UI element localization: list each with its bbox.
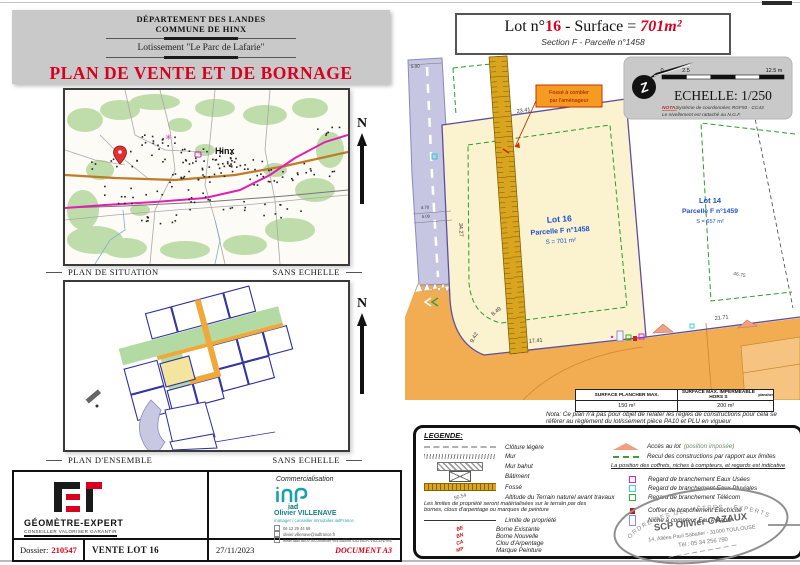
vente-cell: VENTE LOT 16 — [92, 540, 159, 560]
lot14-name: Lot 14 — [699, 196, 722, 205]
lot14-area: S = 657 m² — [696, 219, 724, 225]
legend-item: MP Marque Peinture — [424, 546, 542, 554]
situation-caption-row: PLAN DE SITUATION SANS ECHELLE — [46, 266, 362, 278]
scale-bar — [662, 75, 784, 79]
north-arrowhead-icon — [357, 313, 367, 326]
dim-road-length: 34.27 — [457, 223, 464, 237]
surveyor-brand: GÉOMÈTRE-EXPERT — [24, 518, 124, 528]
scale-nota2: Le nivellement est rattaché au N.G.F. — [662, 112, 741, 118]
lot-title-mid: - Surface = — [561, 18, 640, 35]
header-band: DÉPARTEMENT DES LANDES COMMUNE DE HINX L… — [12, 10, 390, 84]
legend-item: 50.54 Altitude du Terrain naturel avant … — [424, 493, 615, 501]
table-header-1: SURFACE PLANCHER MAX. — [576, 390, 678, 401]
web-icon — [274, 537, 280, 543]
ensemble-map-frame — [63, 280, 350, 452]
iad-logo: iad — [274, 484, 314, 510]
north-letter: N — [350, 116, 374, 132]
commercial-label: Commercialisation — [276, 476, 334, 483]
north-arrow: N — [350, 296, 374, 394]
dim-road-width: 5.00 — [411, 63, 421, 69]
divider — [83, 540, 85, 560]
document-format: DOCUMENT A3 — [335, 540, 392, 560]
north-arrow: N — [350, 116, 374, 204]
situation-map-frame: Hinx ✳ — [63, 88, 350, 266]
chateau-symbol: ✳ — [165, 133, 172, 142]
date-cell: 27/11/2023 — [216, 540, 254, 560]
ensemble-caption: PLAN D'ENSEMBLE — [68, 455, 152, 465]
marker-niche-aep — [617, 331, 623, 341]
lot-title-prefix: Lot n° — [504, 18, 545, 35]
scale-title: ECHELLE: 1/250 — [674, 88, 772, 103]
table-value-1: 150 m² — [576, 401, 678, 411]
altitude-symbol: 50.54 — [424, 494, 496, 500]
dim-front14: 21.71 — [715, 314, 729, 322]
limits-note: Les limites de propriété seront matérial… — [424, 501, 606, 514]
scan-corner-tick — [762, 1, 792, 5]
agent-phone: 06 12 29 44 69 — [283, 526, 310, 531]
agent-email: olivier.villenave@iadfrance.fr — [283, 532, 335, 537]
ornament-divider — [106, 36, 296, 41]
mur-symbol — [424, 454, 496, 459]
north-shaft — [360, 146, 364, 204]
fosse-symbol — [424, 483, 496, 491]
recul-symbol — [611, 456, 641, 458]
lot-title-box: Lot n°16 - Surface = 701m² Section F - P… — [455, 13, 731, 55]
ornament-divider — [106, 55, 296, 60]
legend-item: Mur — [424, 452, 516, 460]
annotation-line2: par l'aménageur — [550, 98, 589, 104]
legend-item: Fossé — [424, 483, 522, 491]
department-label: DÉPARTEMENT DES LANDES — [12, 10, 390, 24]
situation-map: Hinx ✳ — [65, 90, 348, 264]
dossier-label: Dossier: — [20, 545, 48, 555]
caption-dash — [46, 460, 62, 461]
dossier-number: 210547 — [51, 545, 77, 555]
scale-nota-label: NOTA: — [662, 105, 677, 111]
dim-side14: 46.75 — [733, 271, 747, 279]
lot14-label-group: Lot 14 Parcelle F n°1459 S = 657 m² — [682, 196, 738, 225]
regard-eaux-pluviales-swatch — [622, 485, 642, 492]
divider — [207, 472, 209, 538]
dim-w1: 4.78 — [421, 204, 430, 210]
title-block: GÉOMÈTRE-EXPERT CONSEILLER VALORISER GAR… — [12, 470, 402, 562]
situation-caption: PLAN DE SITUATION — [68, 267, 159, 277]
scale-tick0: 0 — [660, 68, 663, 74]
table-header-2: SURFACE MAX. IMPERMEABLE HORS Splancher — [678, 390, 773, 401]
legend-title: LEGENDE: — [424, 431, 463, 440]
surveyor-tagline: CONSEILLER VALORISER GARANTIR — [24, 529, 117, 537]
ensemble-caption-row: PLAN D'ENSEMBLE SANS ECHELLE — [46, 454, 362, 466]
table-value-2: 200 m² — [678, 401, 773, 411]
lot14-east-boundary — [754, 113, 793, 308]
mur-bahut-symbol — [424, 462, 496, 471]
north-arrowhead-icon — [357, 133, 367, 146]
lotissement-label: Lotissement "Le Parc de Lafarie" — [12, 43, 390, 53]
ensemble-scale-note: SANS ECHELLE — [272, 455, 340, 465]
legend-item: Mur bahut — [424, 462, 533, 470]
acces-lot16 — [653, 324, 673, 333]
surface-table: SURFACE PLANCHER MAX. SURFACE MAX. IMPER… — [575, 389, 774, 412]
lot-number: 16 — [545, 18, 561, 35]
geometre-expert-logo — [52, 480, 114, 516]
lot14-parcel-label: Parcelle F n°1459 — [682, 207, 738, 215]
scale-box: Z 0 2.5 12.5 m ECHELLE: 1/250 NOTA: Syst… — [624, 57, 792, 119]
situation-scale-note: SANS ECHELLE — [272, 267, 340, 277]
scale-tick2: 12.5 m — [766, 68, 783, 74]
legend-item: Recul des constructions par rapport aux … — [611, 452, 776, 461]
marker-eaux-pluviales — [690, 324, 694, 328]
divider — [207, 540, 209, 560]
annotation-line1: Fossé à combler — [549, 90, 589, 96]
marker-electricite — [633, 336, 637, 341]
agent-name: Olivier VILLENAVE — [274, 510, 337, 517]
page-title: PLAN DE VENTE ET DE BORNAGE — [12, 63, 390, 84]
acces-symbol — [611, 443, 641, 450]
lot-subtitle: Section F - Parcelle n°1458 — [457, 37, 729, 47]
legend-item: Accès au lot (position imposée) — [611, 442, 734, 451]
plan-nota: Nota: Ce plan n'a pas pour objet de rela… — [546, 411, 780, 425]
north-letter: N — [350, 296, 374, 312]
cloture-symbol — [424, 446, 496, 448]
lot-title: Lot n°16 - Surface = 701m² — [457, 18, 729, 36]
legend-item: Clôture légère — [424, 443, 544, 451]
dossier-cell: Dossier: 210547 — [20, 540, 77, 560]
caption-dash — [346, 272, 362, 273]
scale-tick1: 2.5 — [682, 68, 690, 74]
commune-label: COMMUNE DE HINX — [12, 24, 390, 34]
lot-surface: 701m² — [640, 18, 681, 35]
caption-dash — [346, 460, 362, 461]
ensemble-map — [65, 282, 348, 450]
scale-nota1: Système de coordonnées RGF93 - CC43 — [676, 105, 764, 111]
caption-dash — [46, 272, 62, 273]
dim-w2: 5.00 — [422, 213, 431, 219]
lot16-name: Lot 16 — [546, 213, 572, 225]
plan-de-vente-document: DÉPARTEMENT DES LANDES COMMUNE DE HINX L… — [0, 0, 800, 565]
north-shaft — [360, 326, 364, 394]
parcel-plan: Fossé à combler par l'aménageur Lot 16 P… — [405, 55, 800, 400]
position-note: La position des coffrets, niches à compt… — [611, 463, 797, 469]
town-label: Hinx — [215, 146, 235, 156]
agent-role: manager / conseiller immobilier iadFranc… — [274, 518, 354, 523]
regard-eaux-usees-swatch — [622, 476, 642, 483]
legend-item: Bâtiment — [424, 472, 529, 480]
batiment-symbol — [424, 471, 496, 482]
scan-top-edge — [0, 2, 800, 3]
